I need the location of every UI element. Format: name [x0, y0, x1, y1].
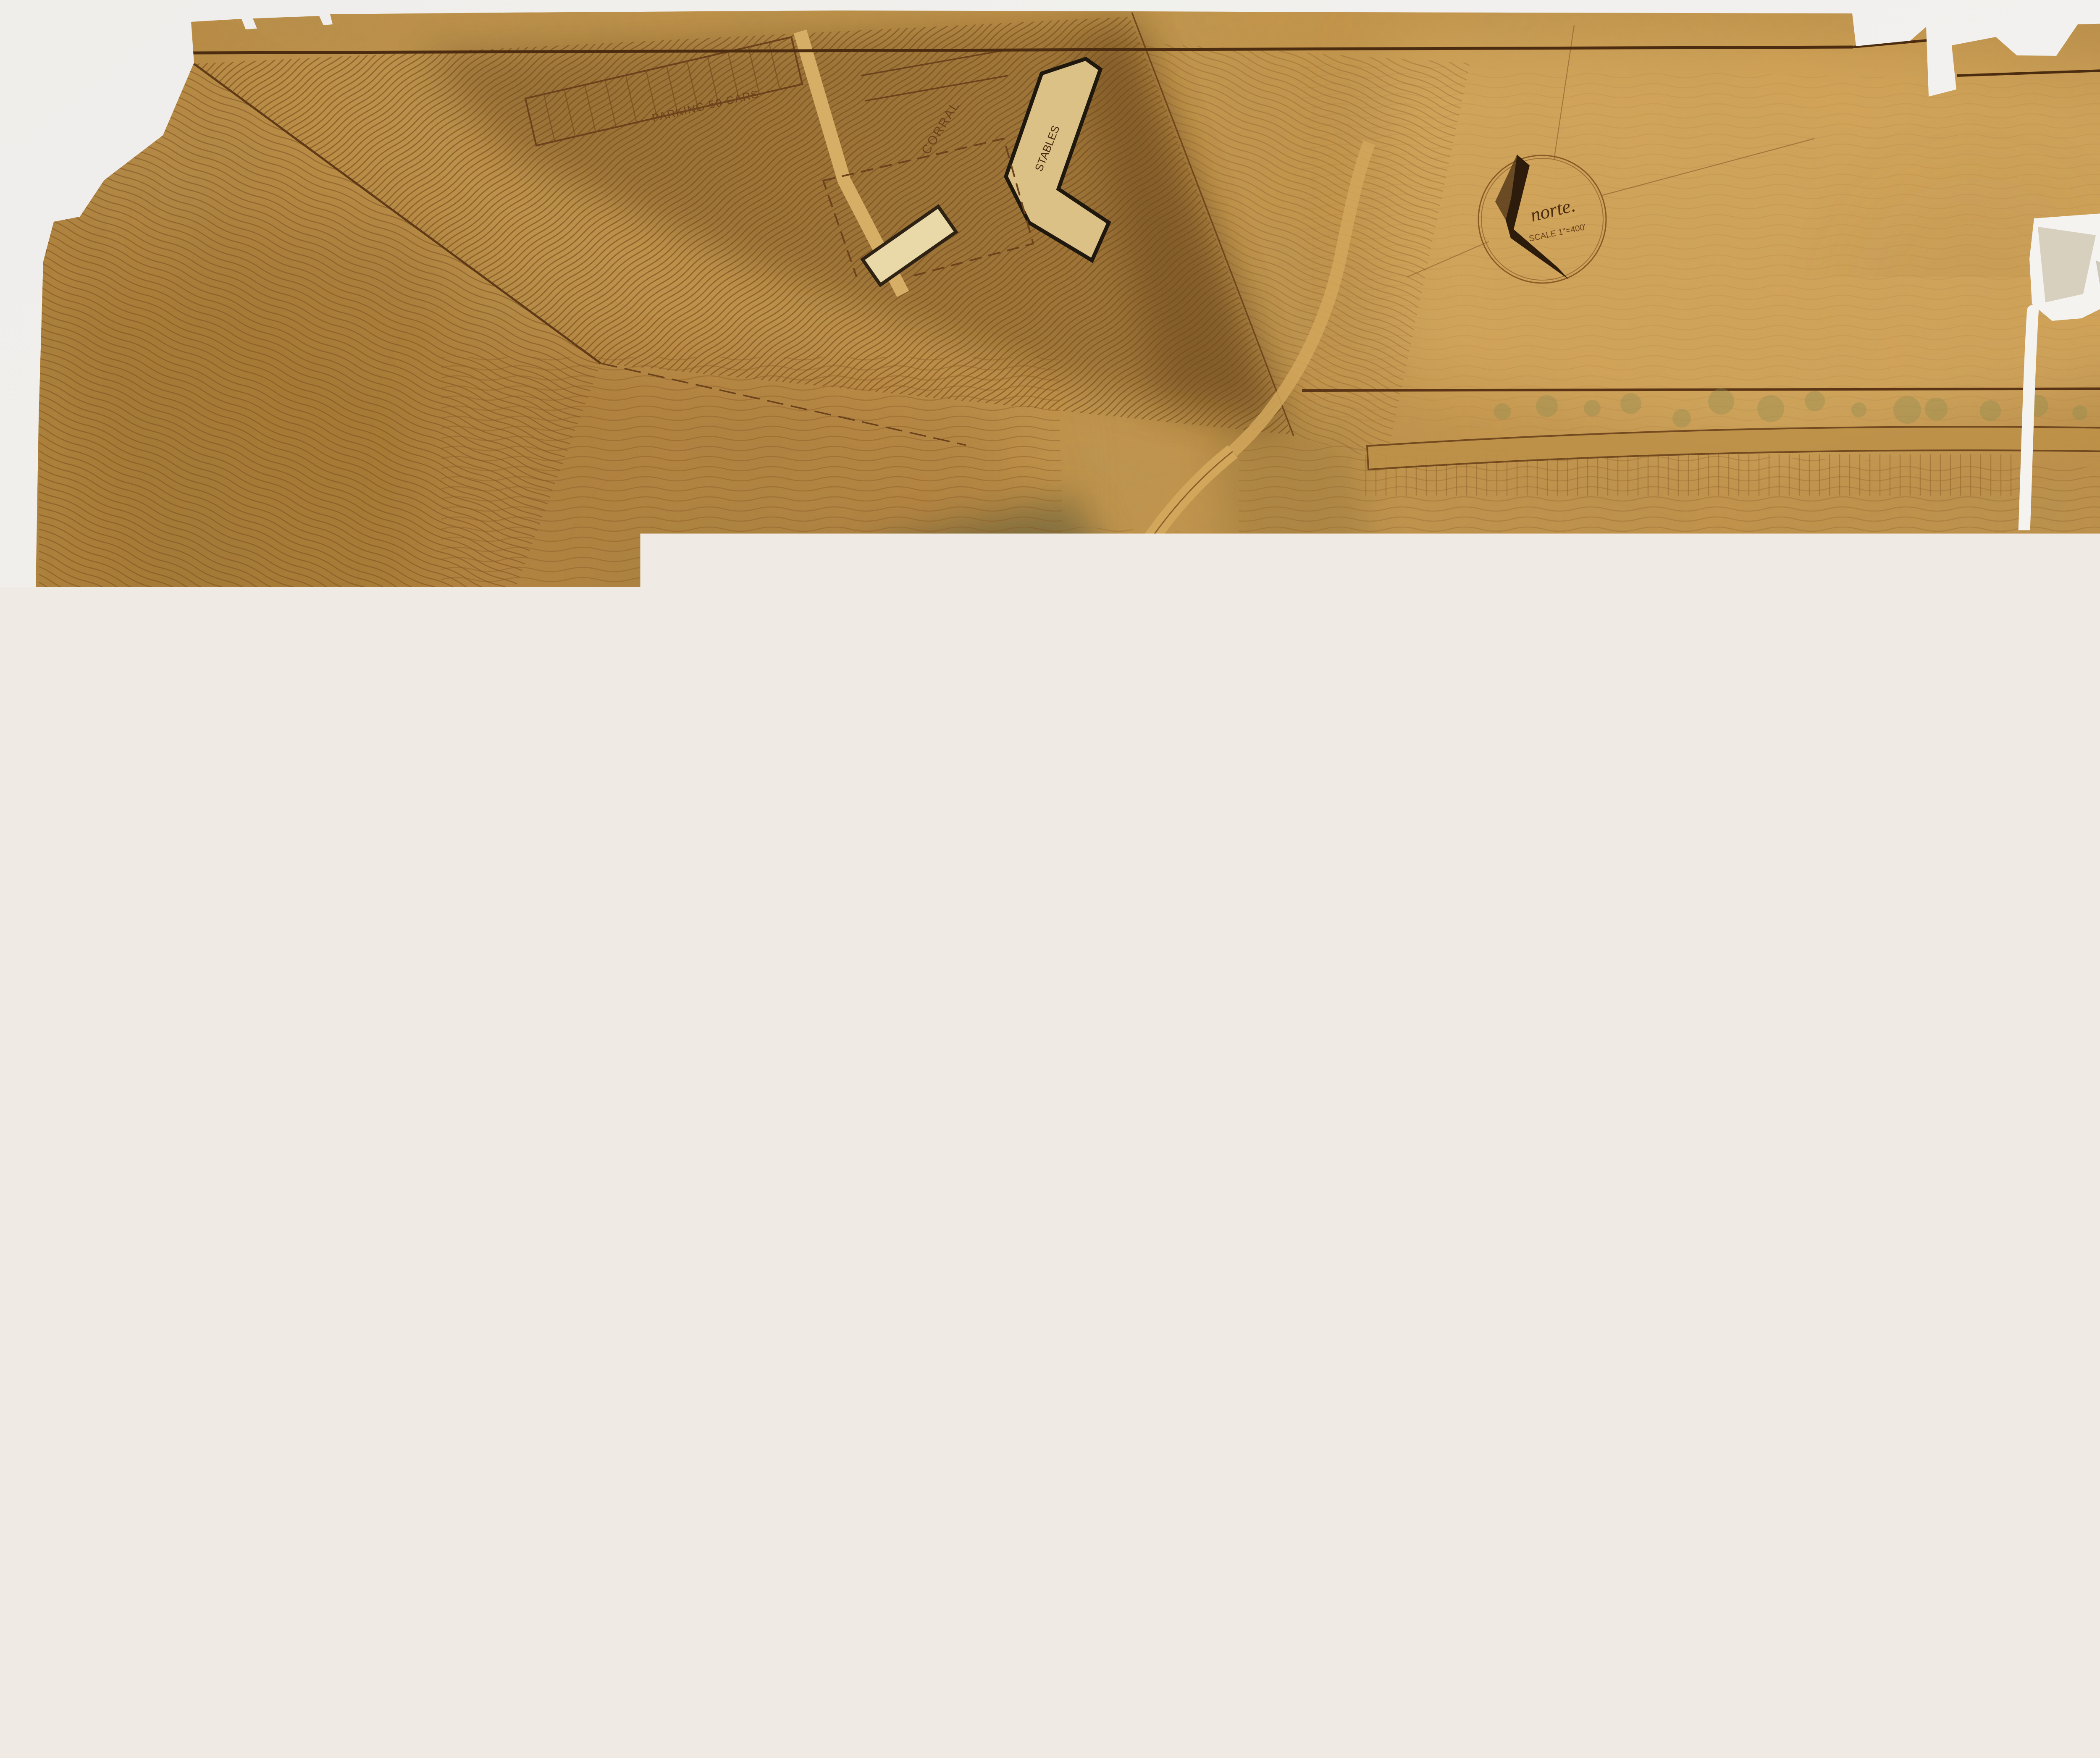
svg-text:C: C [1609, 863, 1630, 897]
svg-text:23: 23 [391, 753, 410, 775]
svg-text:12: 12 [218, 1287, 238, 1308]
svg-text:LANE: LANE [1033, 1488, 1071, 1501]
svg-text:4: 4 [420, 407, 430, 428]
svg-text:6: 6 [223, 537, 232, 559]
svg-text:MUSEUM: MUSEUM [1743, 767, 1797, 779]
svg-text:R-5: R-5 [1268, 1050, 1298, 1070]
svg-text:25: 25 [462, 1054, 481, 1075]
svg-text:C-1: C-1 [1518, 513, 1548, 533]
svg-text:PROPERTY LINE: PROPERTY LINE [311, 1266, 402, 1277]
svg-text:1: 1 [680, 260, 690, 281]
svg-text:R-2: R-2 [498, 1298, 528, 1319]
svg-text:28: 28 [1312, 1459, 1332, 1480]
svg-text:39: 39 [2092, 457, 2100, 479]
svg-text:3: 3 [498, 359, 507, 380]
svg-text:ARTS / CRAFTS: ARTS / CRAFTS [1550, 844, 1636, 855]
svg-text:R-4&5: R-4&5 [817, 829, 869, 849]
svg-text:PROPERTY LINE: PROPERTY LINE [1512, 373, 1603, 385]
svg-text:H: H [391, 437, 414, 471]
svg-text:29: 29 [1407, 1356, 1426, 1378]
svg-text:H: H [462, 1290, 486, 1323]
svg-text:D: D [2089, 500, 2100, 534]
svg-text:R-1: R-1 [668, 1311, 704, 1336]
svg-text:15: 15 [575, 1283, 595, 1304]
svg-text:SHOWING METROPOLITAN AREA: SHOWING METROPOLITAN AREA [399, 1675, 570, 1687]
svg-text:10: 10 [162, 1001, 181, 1023]
svg-text:16: 16 [714, 1283, 733, 1304]
svg-text:THIS DRAWING THE DESIGNS AND T: THIS DRAWING THE DESIGNS AND THE PLANNIN… [1600, 1719, 1843, 1729]
svg-text:A: A [1237, 1042, 1259, 1076]
svg-text:37: 37 [2079, 718, 2098, 739]
svg-text:R-5: R-5 [388, 924, 418, 945]
svg-text:11: 11 [183, 1184, 201, 1205]
svg-text:9: 9 [143, 861, 152, 882]
svg-text:R-5: R-5 [1212, 337, 1242, 358]
svg-text:SHOP: SHOP [1777, 628, 1803, 638]
svg-text:E: E [1974, 882, 1994, 916]
svg-text:30: 30 [1495, 1318, 1515, 1340]
svg-text:SHOP: SHOP [1722, 983, 1748, 993]
svg-text:R-2: R-2 [1142, 1400, 1172, 1420]
svg-text:SHOP: SHOP [1669, 859, 1696, 869]
svg-text:24: 24 [445, 861, 465, 882]
svg-text:31: 31 [1630, 1299, 1649, 1321]
svg-text:C-1: C-1 [1640, 869, 1672, 892]
svg-text:20: 20 [273, 865, 292, 886]
svg-text:R-2: R-2 [151, 966, 181, 987]
svg-text:36: 36 [1991, 932, 2010, 953]
svg-text:B: B [783, 821, 803, 855]
svg-text:13: 13 [340, 1291, 360, 1312]
svg-text:32: 32 [1751, 1289, 1771, 1310]
svg-text:7: 7 [86, 569, 96, 590]
svg-text:SAN FRANCISCO STREET: SAN FRANCISCO STREET [1113, 1630, 1354, 1648]
svg-text:R-1: R-1 [2029, 1115, 2063, 1139]
svg-text:R-2: R-2 [424, 446, 454, 466]
svg-text:2: 2 [584, 315, 593, 336]
svg-text:C: C [1487, 506, 1509, 539]
svg-text:R-5: R-5 [966, 266, 996, 286]
svg-text:LAKE: LAKE [1214, 1211, 1253, 1225]
svg-text:R-2: R-2 [2005, 890, 2035, 910]
svg-text:LEGEND: LEGEND [1987, 1415, 2053, 1431]
svg-text:OLD TOWN: OLD TOWN [1619, 688, 1697, 702]
svg-text:8: 8 [90, 735, 100, 756]
svg-text:JOHN N VOGLEY LANDSCAPE: JOHN N VOGLEY LANDSCAPE [1596, 1699, 1855, 1716]
svg-text:22: 22 [367, 636, 387, 657]
svg-text:14: 14 [458, 1346, 477, 1367]
svg-text:33: 33 [1856, 1278, 1876, 1300]
svg-text:27: 27 [1176, 1461, 1195, 1482]
svg-text:26: 26 [1002, 1455, 1021, 1476]
svg-text:KEY MAP: KEY MAP [414, 1654, 489, 1671]
svg-text:17: 17 [504, 1226, 523, 1247]
svg-text:F: F [1640, 1191, 1659, 1225]
svg-text:G: G [1109, 1393, 1132, 1426]
svg-text:21: 21 [269, 680, 288, 701]
svg-text:H: H [118, 958, 141, 992]
svg-text:LANE: LANE [1684, 588, 1722, 601]
svg-text:5: 5 [344, 501, 354, 523]
svg-text:A: A [930, 259, 952, 292]
svg-text:35: 35 [1882, 1029, 1901, 1050]
svg-text:SHOP: SHOP [1640, 647, 1666, 657]
svg-text:A: A [1176, 330, 1198, 364]
svg-text:PARKING 195 CARS: PARKING 195 CARS [1588, 527, 1735, 543]
svg-text:LULU BELLE: LULU BELLE [1588, 957, 1656, 968]
svg-text:19: 19 [191, 921, 210, 943]
svg-text:R-2: R-2 [1672, 1198, 1701, 1219]
svg-text:34: 34 [1798, 1121, 1817, 1142]
svg-text:R-1: R-1 [1646, 1410, 1677, 1432]
svg-text:I: I [370, 916, 381, 950]
